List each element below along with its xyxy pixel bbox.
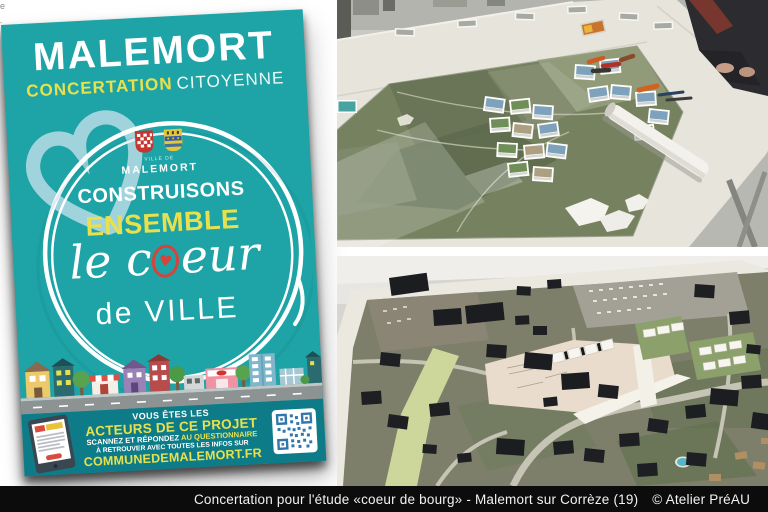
crest-gold-blue-icon xyxy=(162,128,183,153)
poster-footer-text: VOUS ÊTES LES ACTEURS DE CE PROJET SCANN… xyxy=(73,405,270,470)
concertation-poster: MALEMORT CONCERTATIONCITOYENNE xyxy=(1,9,326,476)
script-prefix: le c xyxy=(68,231,153,289)
cropped-edge-text: e xyxy=(0,2,5,11)
caption-text: Concertation pour l'étude «coeur de bour… xyxy=(194,492,638,507)
collage-page: e - MALEMORT CONCERTATIONCITOYENNE xyxy=(0,0,768,512)
heart-ring-icon: ♥ xyxy=(150,243,181,279)
photo-massing-model xyxy=(337,256,768,486)
script-suffix: eur xyxy=(179,226,261,284)
caption-credit: © Atelier PréAU xyxy=(652,492,750,507)
tablet-questionnaire-icon xyxy=(27,414,77,479)
photo-workshop-table xyxy=(337,0,768,247)
qr-code xyxy=(272,408,318,454)
crest-red-checker-icon xyxy=(133,129,154,154)
red-heart-icon: ♥ xyxy=(158,251,174,271)
caption-bar: Concertation pour l'étude «coeur de bour… xyxy=(0,486,768,512)
